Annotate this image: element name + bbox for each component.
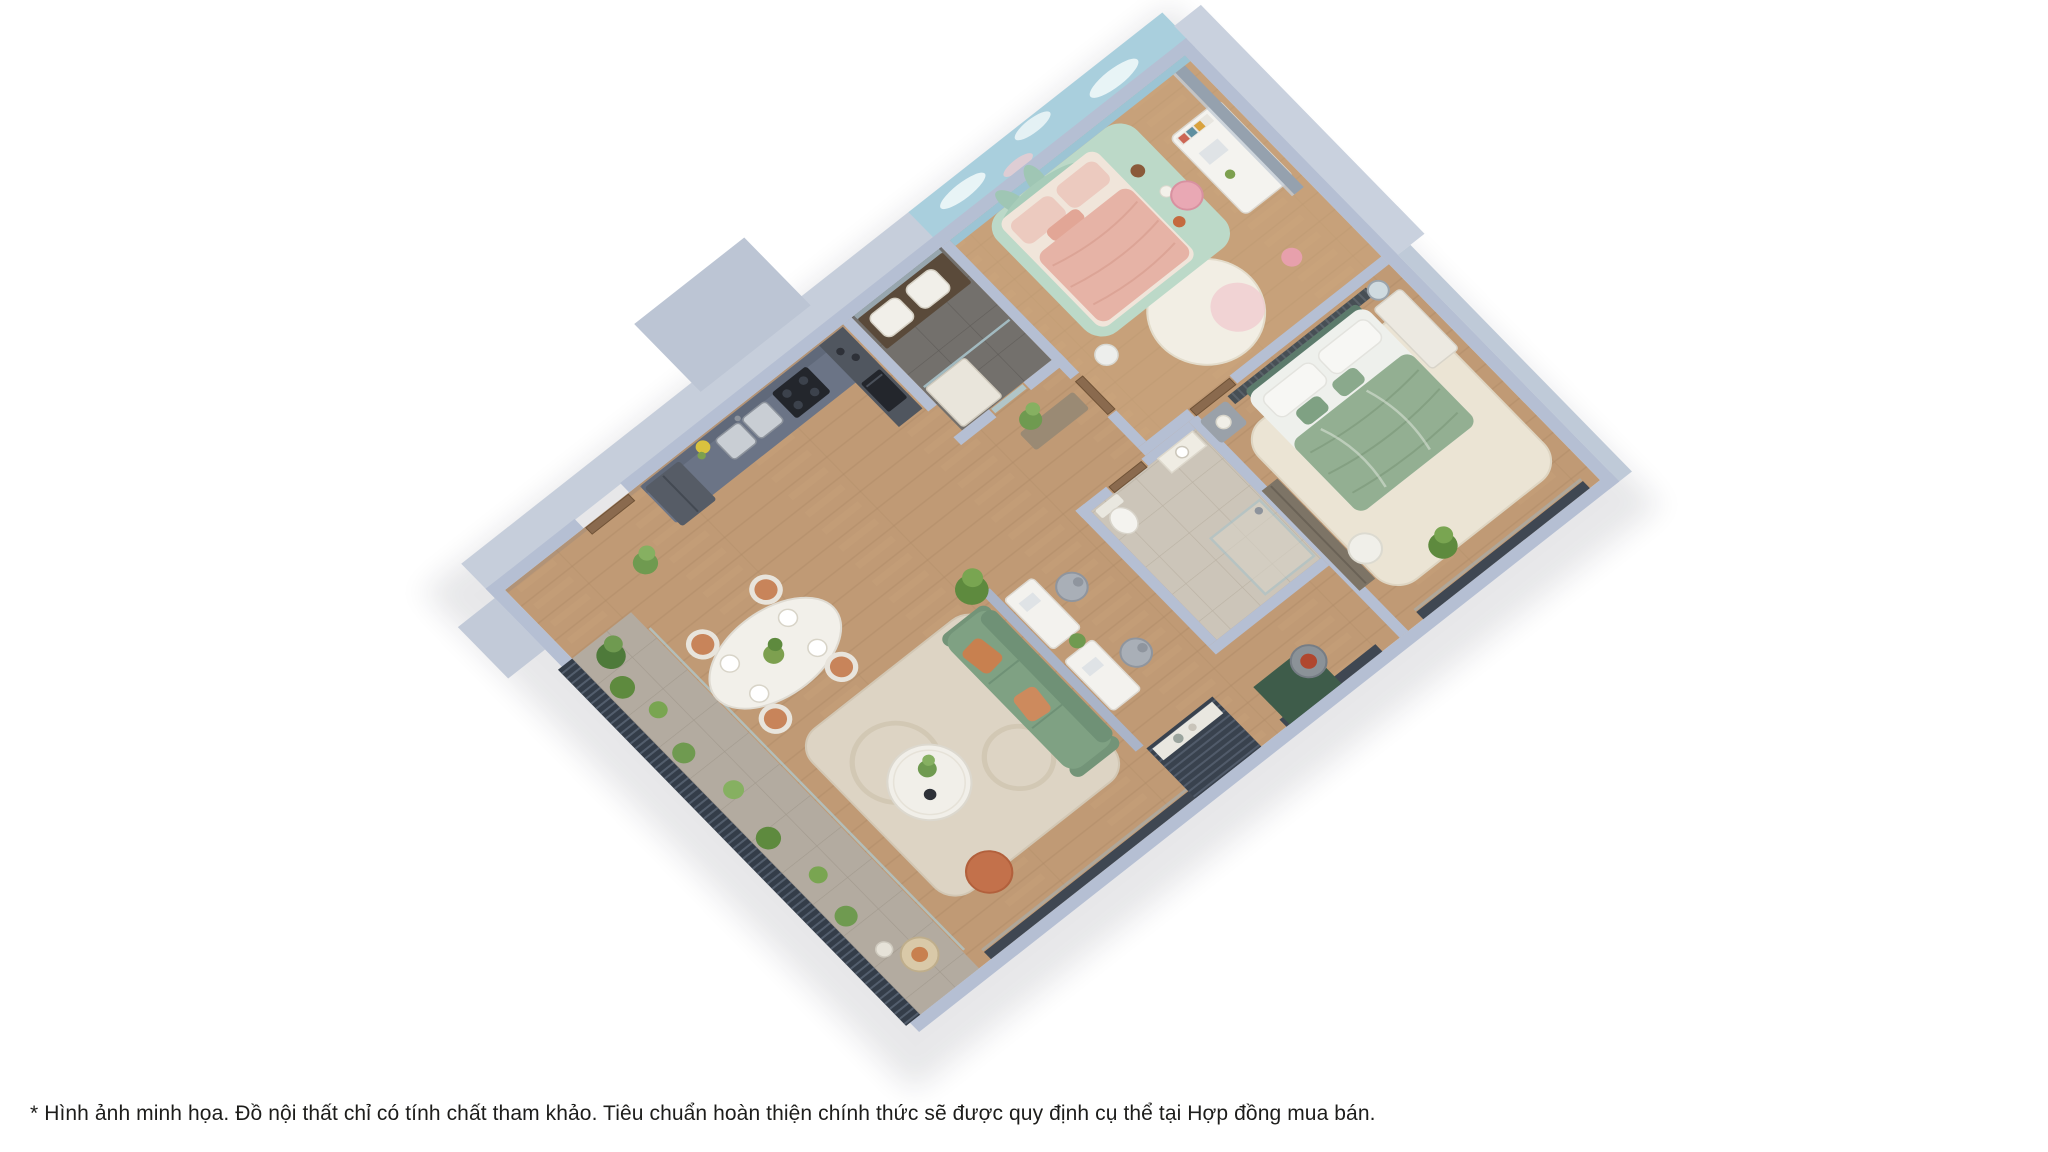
screenshot-canvas: * Hình ảnh minh họa. Đồ nội thất chỉ có …: [0, 0, 2048, 1152]
disclaimer-caption: * Hình ảnh minh họa. Đồ nội thất chỉ có …: [30, 1100, 1376, 1128]
floor-plan-3d-render: [0, 0, 2048, 1152]
